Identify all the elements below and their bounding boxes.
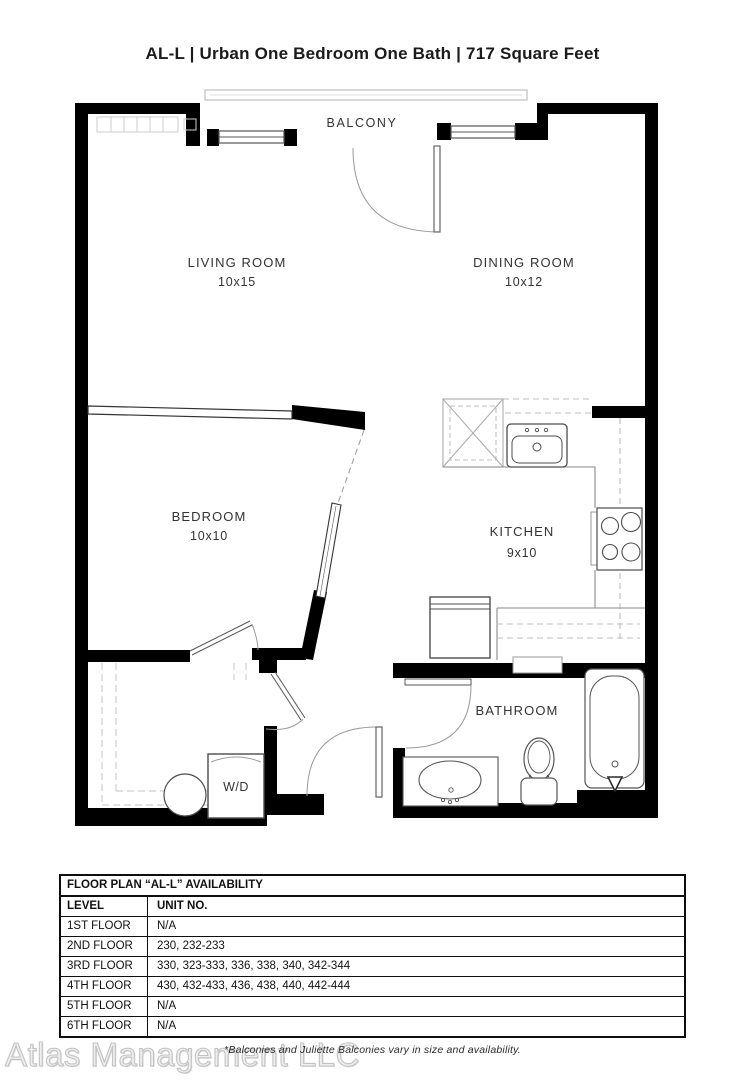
kitchen-label: KITCHEN <box>490 524 555 539</box>
units-cell: N/A <box>148 1017 684 1036</box>
floorplan-page: { "title": "AL-L | Urban One Bedroom One… <box>0 0 745 1080</box>
table-header-row: LEVEL UNIT NO. <box>61 897 684 917</box>
col-header-level: LEVEL <box>61 897 148 916</box>
kitchen-dims: 9x10 <box>507 546 537 560</box>
table-row: 2ND FLOOR 230, 232-233 <box>61 937 684 957</box>
toilet <box>521 738 557 805</box>
bedroom-label: BEDROOM <box>172 509 247 524</box>
bathroom-label: BATHROOM <box>476 703 559 718</box>
availability-table: FLOOR PLAN “AL-L” AVAILABILITY LEVEL UNI… <box>59 874 686 1038</box>
hall-door <box>266 672 305 730</box>
living-room-label: LIVING ROOM <box>188 255 287 270</box>
footnote: *Balconies and Juliette Balconies vary i… <box>0 1044 745 1056</box>
table-row: 3RD FLOOR 330, 323-333, 336, 338, 340, 3… <box>61 957 684 977</box>
dining-room-dims: 10x12 <box>505 275 543 289</box>
window-right <box>451 126 515 138</box>
balcony-door <box>353 146 440 232</box>
table-row: 1ST FLOOR N/A <box>61 917 684 937</box>
sliding-door <box>316 503 341 598</box>
level-cell: 3RD FLOOR <box>61 957 148 976</box>
table-row: 4TH FLOOR 430, 432-433, 436, 438, 440, 4… <box>61 977 684 997</box>
table-title: FLOOR PLAN “AL-L” AVAILABILITY <box>61 876 684 897</box>
bedroom-dims: 10x10 <box>190 529 228 543</box>
dining-room-label: DINING ROOM <box>473 255 575 270</box>
bathtub <box>585 669 644 791</box>
stove <box>591 508 642 570</box>
vanity-sink <box>403 757 498 806</box>
walls <box>75 103 658 826</box>
heater-unit <box>97 117 196 132</box>
units-cell: N/A <box>148 917 684 936</box>
table-row: 6TH FLOOR N/A <box>61 1017 684 1036</box>
window-left <box>219 131 284 143</box>
units-cell: 430, 432-433, 436, 438, 440, 442-444 <box>148 977 684 996</box>
level-cell: 5TH FLOOR <box>61 997 148 1016</box>
water-heater <box>164 774 206 816</box>
living-room-dims: 10x15 <box>218 275 256 289</box>
bathroom-door <box>405 679 471 748</box>
floor-plan-drawing: BALCONY LIVING ROOM 10x15 DINING ROOM 10… <box>0 0 745 860</box>
wall-niche <box>513 657 562 673</box>
balcony-rail <box>205 90 527 100</box>
units-cell: 230, 232-233 <box>148 937 684 956</box>
bedroom-door <box>190 621 258 655</box>
col-header-unit-no: UNIT NO. <box>148 897 684 916</box>
bedroom-partition <box>88 406 364 598</box>
washer-dryer-label: W/D <box>223 780 249 794</box>
units-cell: N/A <box>148 997 684 1016</box>
kitchen-sink <box>507 424 567 467</box>
table-row: 5TH FLOOR N/A <box>61 997 684 1017</box>
level-cell: 2ND FLOOR <box>61 937 148 956</box>
entry-door <box>307 727 382 797</box>
balcony-label: BALCONY <box>327 116 398 130</box>
refrigerator <box>430 597 490 658</box>
units-cell: 330, 323-333, 336, 338, 340, 342-344 <box>148 957 684 976</box>
level-cell: 6TH FLOOR <box>61 1017 148 1036</box>
level-cell: 4TH FLOOR <box>61 977 148 996</box>
level-cell: 1ST FLOOR <box>61 917 148 936</box>
